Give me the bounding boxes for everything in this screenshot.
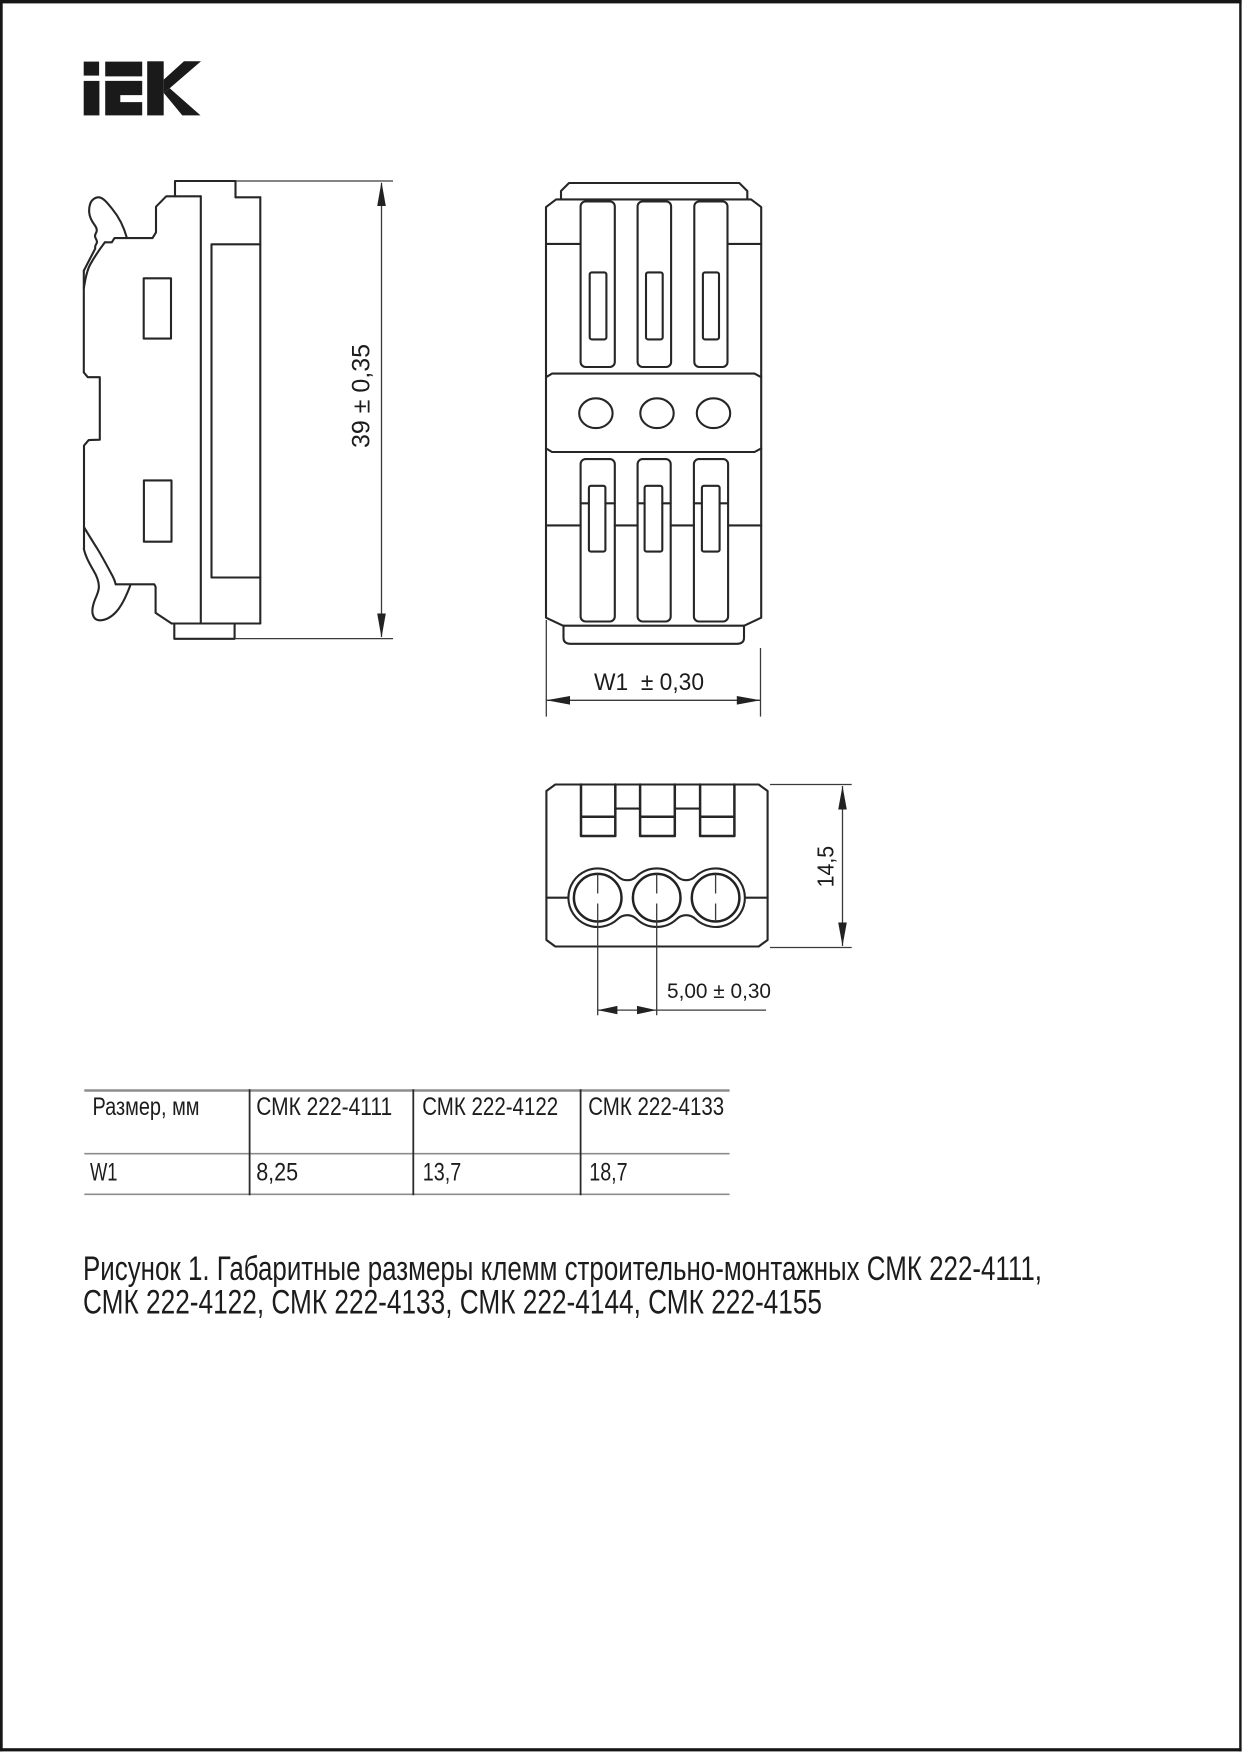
svg-text:39 ± 0,35: 39 ± 0,35 [348,344,376,448]
svg-text:СМК 222-4111: СМК 222-4111 [256,1093,392,1121]
svg-text:Размер, мм: Размер, мм [93,1093,200,1121]
svg-text:СМК 222-4122: СМК 222-4122 [422,1093,558,1121]
svg-text:W1 ± 0,30: W1 ± 0,30 [594,669,704,696]
svg-text:Рисунок 1. Габаритные размеры: Рисунок 1. Габаритные размеры клемм стро… [83,1250,1042,1288]
svg-text:18,7: 18,7 [589,1158,628,1186]
svg-text:14,5: 14,5 [813,846,839,888]
svg-text:СМК 222-4133: СМК 222-4133 [588,1093,724,1121]
svg-text:13,7: 13,7 [423,1158,462,1186]
svg-text:8,25: 8,25 [256,1158,298,1186]
svg-text:W1: W1 [90,1158,118,1186]
svg-text:5,00 ± 0,30: 5,00 ± 0,30 [667,979,771,1003]
svg-text:СМК 222-4122, СМК 222-4133, СМ: СМК 222-4122, СМК 222-4133, СМК 222-4144… [83,1284,822,1322]
